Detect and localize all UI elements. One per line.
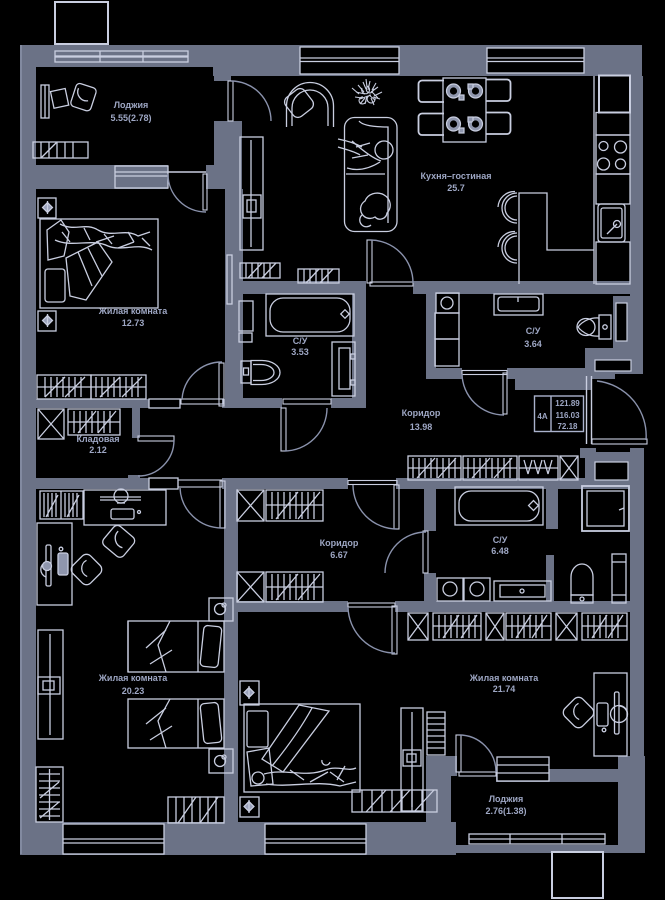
- svg-text:2.12: 2.12: [89, 445, 107, 455]
- svg-text:6.67: 6.67: [330, 550, 348, 560]
- svg-text:С/У: С/У: [493, 535, 508, 545]
- svg-text:4А: 4А: [537, 412, 547, 421]
- svg-text:12.73: 12.73: [122, 318, 145, 328]
- svg-text:Лоджия: Лоджия: [489, 794, 524, 804]
- svg-text:72.18: 72.18: [557, 422, 578, 431]
- svg-text:5.55(2.78): 5.55(2.78): [110, 113, 151, 123]
- svg-text:13.98: 13.98: [410, 422, 433, 432]
- svg-text:Лоджия: Лоджия: [114, 100, 149, 110]
- svg-text:116.03: 116.03: [555, 411, 580, 420]
- svg-text:3.53: 3.53: [291, 347, 309, 357]
- svg-text:Коридор: Коридор: [320, 538, 359, 548]
- svg-text:Жилая комната: Жилая комната: [98, 673, 168, 683]
- svg-text:20.23: 20.23: [122, 686, 145, 696]
- svg-text:2.76(1.38): 2.76(1.38): [485, 806, 526, 816]
- svg-text:С/У: С/У: [526, 326, 541, 336]
- svg-text:Кухня–гостиная: Кухня–гостиная: [421, 171, 492, 181]
- svg-text:6.48: 6.48: [491, 546, 509, 556]
- svg-text:3.64: 3.64: [524, 339, 542, 349]
- svg-text:Жилая комната: Жилая комната: [469, 673, 539, 683]
- svg-text:21.74: 21.74: [493, 684, 516, 694]
- svg-text:121.89: 121.89: [555, 399, 580, 408]
- svg-text:Коридор: Коридор: [402, 408, 441, 418]
- svg-text:25.7: 25.7: [447, 183, 465, 193]
- svg-text:С/У: С/У: [293, 336, 308, 346]
